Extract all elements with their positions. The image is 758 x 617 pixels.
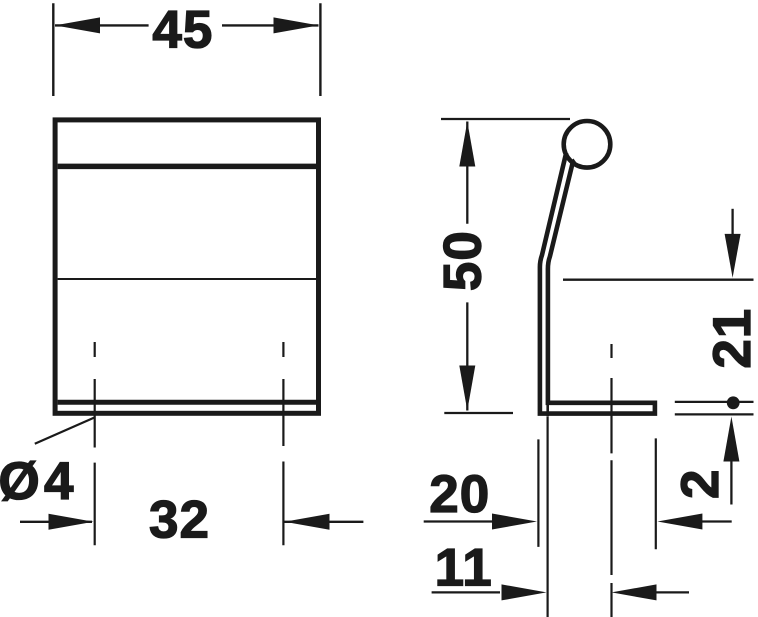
svg-text:32: 32 (149, 490, 210, 549)
svg-text:20: 20 (429, 465, 490, 524)
svg-text:50: 50 (433, 230, 492, 291)
svg-text:4: 4 (44, 452, 74, 511)
svg-text:45: 45 (152, 1, 213, 60)
svg-text:2: 2 (671, 468, 730, 498)
svg-text:11: 11 (435, 539, 493, 598)
svg-text:Ø: Ø (0, 452, 41, 511)
svg-text:21: 21 (703, 308, 758, 369)
